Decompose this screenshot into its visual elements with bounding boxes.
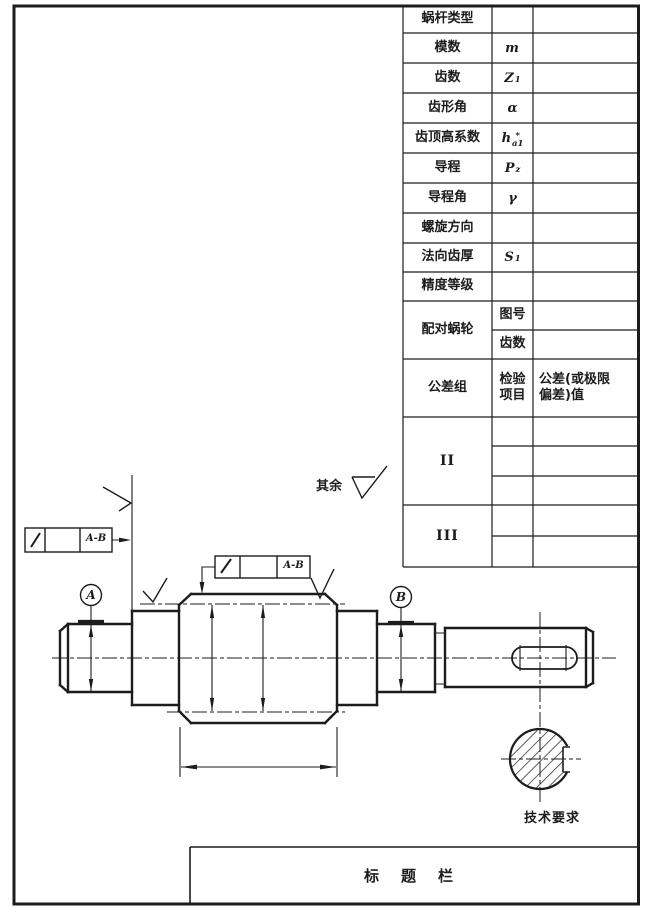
datum-b-letter: B	[390, 590, 412, 604]
symbol-lead: Pz	[493, 153, 532, 183]
datum-a-letter: A	[80, 588, 102, 602]
roughness-check-icon	[103, 487, 131, 511]
title-bar-label: 标题栏	[364, 865, 475, 886]
row-label-lead-angle: 导程角	[404, 183, 491, 213]
runout-symbol-icon	[31, 533, 40, 547]
mating-wheel-teeth: 齿数	[493, 330, 532, 359]
row-label-helix-dir: 螺旋方向	[404, 213, 491, 243]
roughness-icons	[103, 466, 387, 602]
row-label-worm-type: 蜗杆类型	[404, 6, 491, 33]
row-label-mating-wheel: 配对蜗轮	[404, 301, 491, 359]
worm-length-dimension	[180, 727, 337, 777]
tolerance-group-iii: III	[404, 505, 491, 567]
mating-wheel-drawing-no: 图号	[493, 301, 532, 330]
row-label-addendum-coef: 齿顶高系数	[404, 123, 491, 153]
row-label-normal-thickness: 法向齿厚	[404, 243, 491, 272]
symbol-normal-thickness: S1	[493, 243, 532, 272]
symbol-profile-angle: α	[493, 93, 532, 123]
tolerance-frame-1-arrow	[119, 538, 131, 543]
row-label-tolerance-group: 公差组	[404, 359, 491, 417]
row-label-module: 模数	[404, 33, 491, 63]
roughness-check-rest-icon	[352, 466, 387, 498]
runout-symbol-icon	[221, 559, 231, 573]
tolerance-group-ii: II	[404, 417, 491, 505]
symbol-lead-angle: γ	[493, 183, 532, 213]
symbol-module: m	[493, 33, 532, 63]
tolerance-frame-2-arrow	[200, 582, 205, 594]
row-label-lead: 导程	[404, 153, 491, 183]
worm-shaft-drawing-sheet: 蜗杆类型 模数 齿数 齿形角 齿顶高系数 导程 导程角 螺旋方向 法向齿厚 精度…	[0, 0, 650, 914]
rest-surfaces-label: 其余	[316, 475, 342, 494]
symbol-addendum-coef: h*a1	[493, 123, 532, 153]
roughness-check-icon	[143, 578, 167, 602]
tolerance-inspection-items: 检验项目	[496, 359, 529, 417]
frame1-datum-ref: A-B	[80, 533, 112, 544]
drawing-canvas	[0, 0, 650, 914]
symbol-teeth: Z1	[493, 63, 532, 93]
frame2-datum-ref: A-B	[277, 560, 310, 571]
tolerance-frame-1	[25, 528, 129, 552]
row-label-teeth: 齿数	[404, 63, 491, 93]
tolerance-value-line1: 公差(或极限	[539, 372, 610, 388]
tolerance-value-header: 公差(或极限 偏差)值	[534, 359, 637, 417]
technical-requirements-label: 技术要求	[508, 807, 596, 826]
row-label-profile-angle: 齿形角	[404, 93, 491, 123]
tolerance-value-line2: 偏差)值	[539, 388, 584, 404]
row-label-accuracy-grade: 精度等级	[404, 272, 491, 301]
